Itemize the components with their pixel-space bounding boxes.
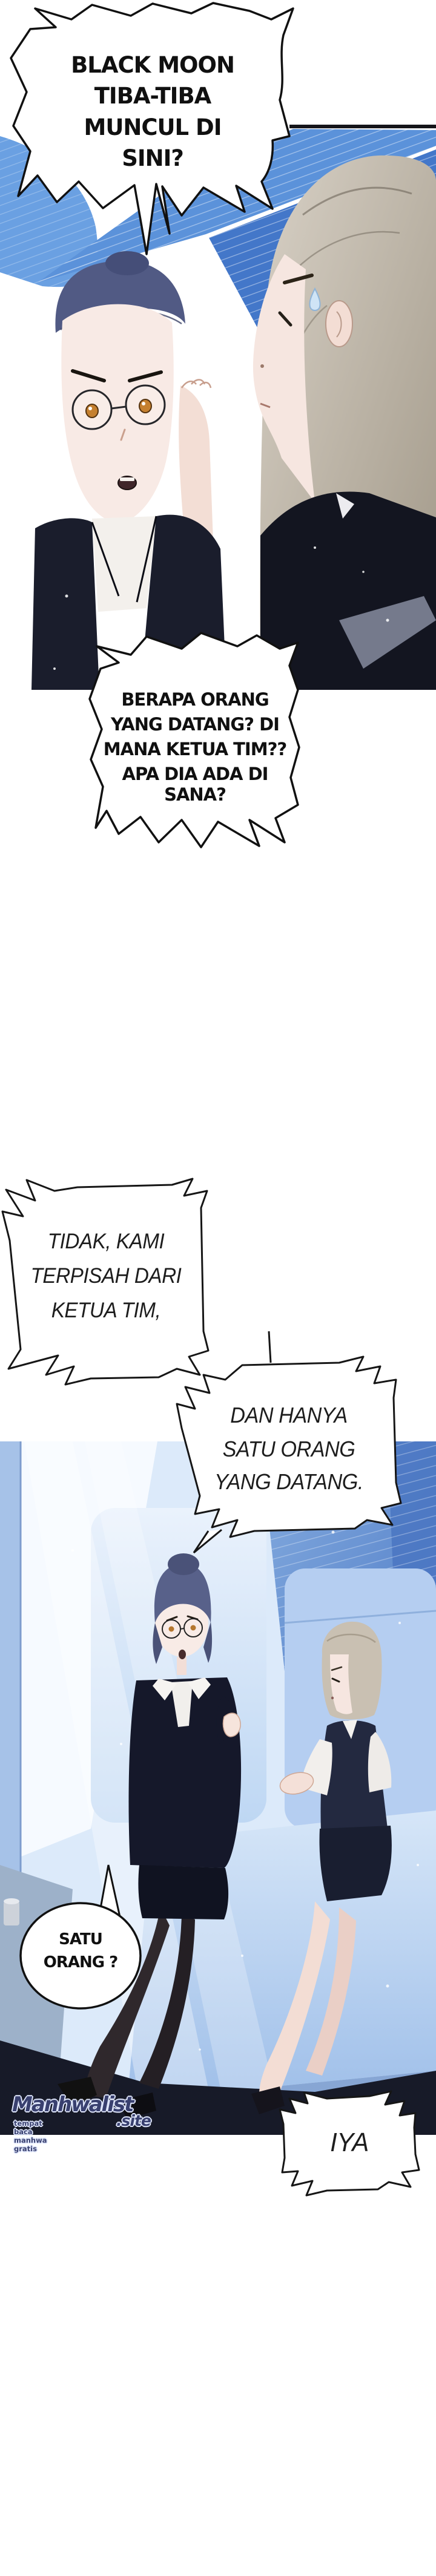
berapa-line: MANA KETUA TIM?? (98, 739, 292, 759)
watermark-domain: .site (116, 2112, 151, 2129)
bubble-dan-tail (194, 1530, 222, 1553)
watermark-brand: Manhwalist (12, 2093, 133, 2117)
berapa-line: APA DIA ADA DI (98, 764, 292, 784)
satu-line: SATU (24, 1930, 137, 1948)
iya-text: IYA (298, 2128, 401, 2158)
berapa-line: BERAPA ORANG (98, 689, 292, 710)
dan-line: SATU ORANG (203, 1437, 375, 1462)
tidak-line: TIDAK, KAMI (20, 1230, 193, 1254)
shout-line: BLACK MOON (56, 52, 249, 78)
tidak-line: TERPISAH DARI (20, 1264, 193, 1288)
satu-line: ORANG ? (24, 1953, 137, 1971)
shout-line: TIBA-TIBA (56, 83, 249, 109)
dan-line: DAN HANYA (203, 1403, 375, 1428)
watermark-tagline: tempat baca manhwa gratis (14, 2119, 47, 2153)
berapa-line: YANG DATANG? DI (98, 714, 292, 735)
shout-line: MUNCUL DI (56, 114, 249, 140)
berapa-line: SANA? (98, 784, 292, 805)
tidak-line: KETUA TIM, (20, 1299, 193, 1323)
webtoon-page: BLACK MOON TIBA-TIBA MUNCUL DI SINI? BER… (0, 0, 436, 2576)
bubble-connector (269, 1331, 271, 1363)
shout-line: SINI? (56, 145, 249, 171)
dan-line: YANG DATANG. (203, 1469, 375, 1495)
